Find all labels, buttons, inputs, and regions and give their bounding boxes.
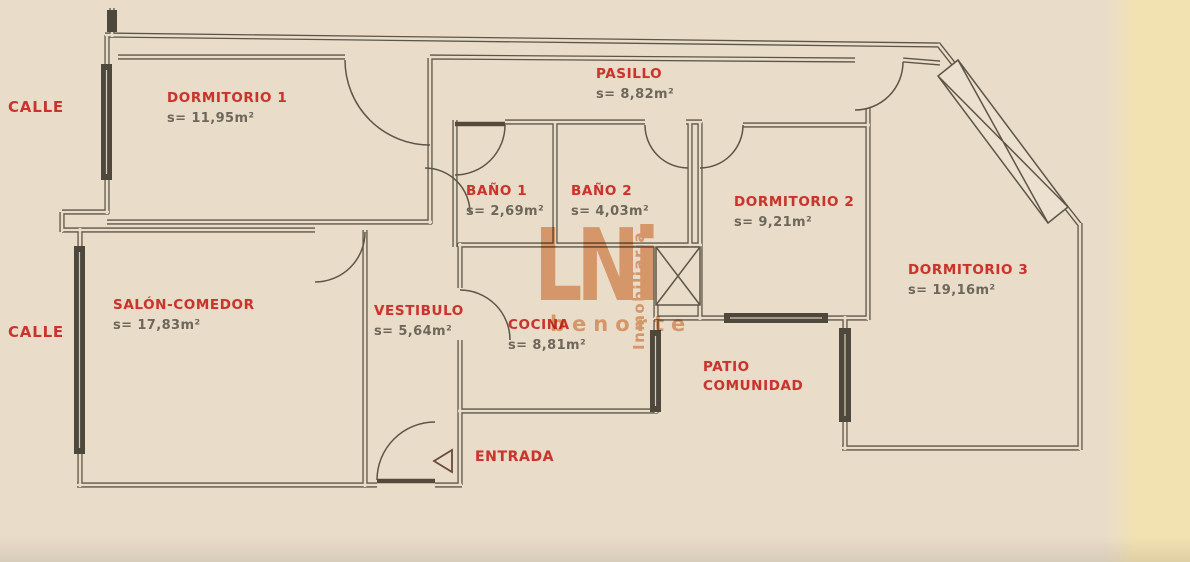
room-name: DORMITORIO 1 [167,90,287,106]
room-name: SALÓN-COMEDOR [113,297,255,313]
room-name: DORMITORIO 3 [908,262,1028,278]
room-area: s= 19,16m² [908,283,1028,298]
room-label-dormitorio-1: DORMITORIO 1 s= 11,95m² [167,90,287,126]
room-label-patio-comunidad: PATIO COMUNIDAD [703,358,803,396]
shaft-box [656,247,700,305]
room-label-cocina: COCINA s= 8,81m² [508,317,586,353]
room-name: PASILLO [596,66,674,82]
room-name: COMUNIDAD [703,377,803,396]
room-name: COCINA [508,317,586,333]
room-area: s= 8,81m² [508,338,586,353]
room-name: PATIO [703,358,803,377]
room-name: BAÑO 1 [466,183,544,199]
walls [62,8,1080,487]
room-label-salon-comedor: SALÓN-COMEDOR s= 17,83m² [113,297,255,333]
room-name: ENTRADA [475,449,554,465]
room-label-bano-2: BAÑO 2 s= 4,03m² [571,183,649,219]
room-area: s= 8,82m² [596,87,674,102]
room-area: s= 2,69m² [466,204,544,219]
room-label-vestibulo: VESTIBULO s= 5,64m² [374,303,464,339]
room-area: s= 11,95m² [167,111,287,126]
room-label-bano-1: BAÑO 1 s= 2,69m² [466,183,544,219]
street-label-bottom: CALLE [8,323,64,341]
entrance-arrow-icon [434,450,452,472]
room-label-entrada: ENTRADA [475,449,554,465]
diagonal-window [938,60,1068,223]
street-label-top: CALLE [8,98,64,116]
room-area: s= 9,21m² [734,215,854,230]
room-name: DORMITORIO 2 [734,194,854,210]
room-label-dormitorio-3: DORMITORIO 3 s= 19,16m² [908,262,1028,298]
room-label-dormitorio-2: DORMITORIO 2 s= 9,21m² [734,194,854,230]
room-area: s= 17,83m² [113,318,255,333]
room-label-pasillo: PASILLO s= 8,82m² [596,66,674,102]
room-name: VESTIBULO [374,303,464,319]
room-area: s= 4,03m² [571,204,649,219]
room-area: s= 5,64m² [374,324,464,339]
room-name: BAÑO 2 [571,183,649,199]
